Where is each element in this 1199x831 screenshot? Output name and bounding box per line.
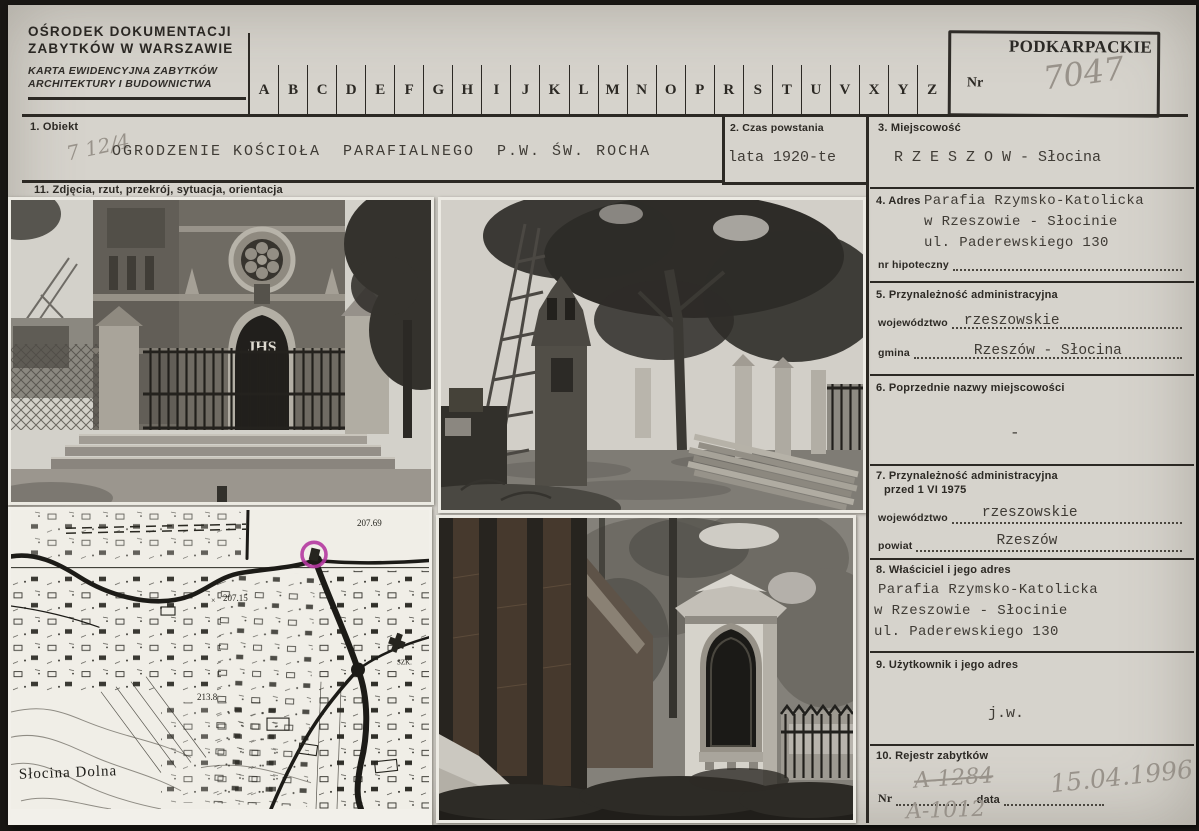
alpha-letter: P bbox=[685, 65, 714, 115]
alpha-letter: F bbox=[394, 65, 423, 115]
owner-line3: ul. Paderewskiego 130 bbox=[874, 622, 1059, 643]
field-admin-division: 5. Przynależność administracyjna wojewód… bbox=[870, 283, 1194, 376]
alpha-letter: H bbox=[452, 65, 481, 115]
construction-site-illustration bbox=[441, 200, 863, 510]
iron-gate-bars bbox=[143, 348, 345, 430]
alpha-letter: M bbox=[598, 65, 627, 115]
header-underline bbox=[28, 97, 246, 100]
alphabet-index-strip: A B C D E F G H I J K L M N O P R S T U … bbox=[250, 65, 946, 115]
iron-fence-spikes bbox=[781, 714, 853, 778]
voivodeship-1975-row: województwo rzeszowskie bbox=[878, 508, 1182, 524]
alpha-letter: V bbox=[830, 65, 859, 115]
field-address-line2: w Rzeszowie - Słocinie bbox=[924, 212, 1118, 233]
voivodeship-row: województwo rzeszowskie bbox=[878, 313, 1182, 329]
alpha-letter: U bbox=[801, 65, 830, 115]
gate-pier-left bbox=[99, 326, 139, 430]
powiat-label: powiat bbox=[878, 540, 912, 552]
site-map-illustration: 207.69 207.15 213.8 SZK. Słocina Dolna × bbox=[11, 510, 429, 809]
mortgage-number-label: nr hipoteczny bbox=[878, 259, 949, 271]
field-owner: 8. Właściciel i jego adres Parafia Rzyms… bbox=[870, 560, 1194, 653]
gmina-row: gmina Rzeszów - Słocina bbox=[878, 343, 1182, 359]
alpha-letter: A bbox=[250, 65, 278, 115]
field-object: 1. Obiekt 7 12/4 OGRODZENIE KOŚCIOŁA PAR… bbox=[22, 117, 722, 183]
owner-line2: w Rzeszowie - Słocinie bbox=[874, 601, 1068, 622]
previous-names-value: - bbox=[1010, 424, 1020, 442]
field-address-line1: Parafia Rzymsko-Katolicka bbox=[924, 191, 1144, 212]
field-locality: 3. Miejscowość R Z E S Z O W - Słocina bbox=[870, 117, 1194, 189]
map-elevation-1: 207.69 bbox=[357, 518, 382, 528]
map-school-label: SZK. bbox=[397, 659, 412, 667]
alpha-letter: X bbox=[859, 65, 888, 115]
field-locality-value: R Z E S Z O W - Słocina bbox=[894, 149, 1101, 166]
field-address-line3: ul. Paderewskiego 130 bbox=[924, 233, 1109, 254]
voivodeship-stamp: PODKARPACKIE Nr 7047 bbox=[948, 30, 1161, 117]
tower-windows bbox=[109, 256, 154, 290]
alpha-letter: Y bbox=[888, 65, 917, 115]
field-admin-label: 5. Przynależność administracyjna bbox=[876, 289, 1058, 301]
alpha-letter: D bbox=[336, 65, 365, 115]
map-elevation-3: 213.8 bbox=[197, 692, 218, 702]
alpha-letter: R bbox=[714, 65, 743, 115]
mortgage-number-blank bbox=[953, 255, 1182, 271]
admin-1975-label-line1: 7. Przynależność administracyjna bbox=[876, 470, 1058, 482]
owner-line1: Parafia Rzymsko-Katolicka bbox=[878, 580, 1098, 601]
powiat-row: powiat Rzeszów bbox=[878, 536, 1182, 552]
owner-label: 8. Właściciel i jego adres bbox=[876, 564, 1011, 576]
card-type-line2: ARCHITEKTURY I BUDOWNICTWA bbox=[28, 78, 246, 91]
voivodeship-label: województwo bbox=[878, 317, 948, 329]
svg-text:×: × bbox=[211, 596, 216, 605]
gmina-line: Rzeszów - Słocina bbox=[914, 343, 1182, 359]
alpha-letter: C bbox=[307, 65, 336, 115]
register-label: 10. Rejestr zabytków bbox=[876, 750, 988, 762]
alpha-letter: K bbox=[539, 65, 568, 115]
heritage-record-card: OŚRODEK DOKUMENTACJI ZABYTKÓW W WARSZAWI… bbox=[8, 5, 1196, 825]
alpha-letter: E bbox=[365, 65, 394, 115]
map-elevation-2: 207.15 bbox=[223, 593, 248, 603]
field-object-value: OGRODZENIE KOŚCIOŁA PARAFIALNEGO P.W. ŚW… bbox=[112, 143, 651, 160]
alpha-letter: N bbox=[627, 65, 656, 115]
card-number-label: Nr bbox=[967, 75, 983, 91]
field-object-label: 1. Obiekt bbox=[30, 121, 78, 133]
admin-1975-label-line2: przed 1 VI 1975 bbox=[884, 484, 967, 496]
alpha-letter: S bbox=[743, 65, 772, 115]
gmina-value: Rzeszów - Słocina bbox=[974, 343, 1122, 359]
alpha-letter: L bbox=[569, 65, 598, 115]
field-admin-before-1975: 7. Przynależność administracyjna przed 1… bbox=[870, 466, 1194, 560]
powiat-value: Rzeszów bbox=[996, 533, 1057, 549]
user-label: 9. Użytkownik i jego adres bbox=[876, 659, 1018, 671]
field-address: 4. Adres Parafia Rzymsko-Katolicka w Rze… bbox=[870, 189, 1194, 283]
organization-name-line1: OŚRODEK DOKUMENTACJI bbox=[28, 23, 246, 40]
register-number-new: A-1012 bbox=[906, 797, 986, 825]
powiat-line: Rzeszów bbox=[916, 536, 1182, 552]
previous-names-label: 6. Poprzednie nazwy miejscowości bbox=[876, 382, 1065, 394]
voivodeship-value: rzeszowskie bbox=[964, 313, 1060, 329]
voivodeship-1975-line: rzeszowskie bbox=[952, 508, 1182, 524]
user-value: j.w. bbox=[988, 705, 1024, 722]
alpha-letter: B bbox=[278, 65, 307, 115]
photo-church-facade: JHS bbox=[8, 197, 434, 505]
gate-pillar-illustration bbox=[439, 518, 853, 820]
chainlink-fence bbox=[11, 344, 99, 430]
alpha-letter: O bbox=[656, 65, 685, 115]
main-column-divider bbox=[866, 117, 869, 823]
voivodeship-line: rzeszowskie bbox=[952, 313, 1182, 329]
church-facade-illustration: JHS bbox=[11, 200, 431, 502]
field-user: 9. Użytkownik i jego adres j.w. bbox=[870, 653, 1194, 746]
iron-fence bbox=[827, 384, 863, 450]
field-date-of-origin: 2. Czas powstania lata 1920-te bbox=[724, 117, 866, 185]
gmina-label: gmina bbox=[878, 347, 910, 359]
field-locality-label: 3. Miejscowość bbox=[878, 122, 961, 134]
alpha-letter: J bbox=[510, 65, 539, 115]
alpha-letter: Z bbox=[917, 65, 946, 115]
photo-gate-pillar-niche bbox=[436, 515, 856, 823]
alpha-letter: G bbox=[423, 65, 452, 115]
photo-construction-site bbox=[438, 197, 866, 513]
voivodeship-1975-label: województwo bbox=[878, 512, 948, 524]
card-type-line1: KARTA EWIDENCYJNA ZABYTKÓW bbox=[28, 65, 246, 78]
field-register: 10. Rejestr zabytków Nr data A-1284 A-10… bbox=[870, 746, 1194, 825]
site-map: 207.69 207.15 213.8 SZK. Słocina Dolna × bbox=[8, 507, 432, 825]
organization-name-line2: ZABYTKÓW W WARSZAWIE bbox=[28, 40, 246, 57]
alpha-letter: I bbox=[481, 65, 510, 115]
mortgage-number-row: nr hipoteczny bbox=[878, 255, 1182, 271]
register-date-value: 15.04.1996 bbox=[1049, 755, 1194, 799]
field-previous-names: 6. Poprzednie nazwy miejscowości - bbox=[870, 376, 1194, 466]
alpha-letter: T bbox=[772, 65, 801, 115]
photos-section-label: 11. Zdjęcia, rzut, przekrój, sytuacja, o… bbox=[34, 184, 283, 196]
field-address-label: 4. Adres bbox=[876, 195, 921, 207]
issuing-organization-block: OŚRODEK DOKUMENTACJI ZABYTKÓW W WARSZAWI… bbox=[28, 23, 246, 100]
register-nr-label: Nr bbox=[878, 791, 892, 806]
field-date-value: lata 1920-te bbox=[728, 149, 836, 166]
field-date-label: 2. Czas powstania bbox=[730, 122, 824, 134]
voivodeship-1975-value: rzeszowskie bbox=[982, 505, 1078, 521]
